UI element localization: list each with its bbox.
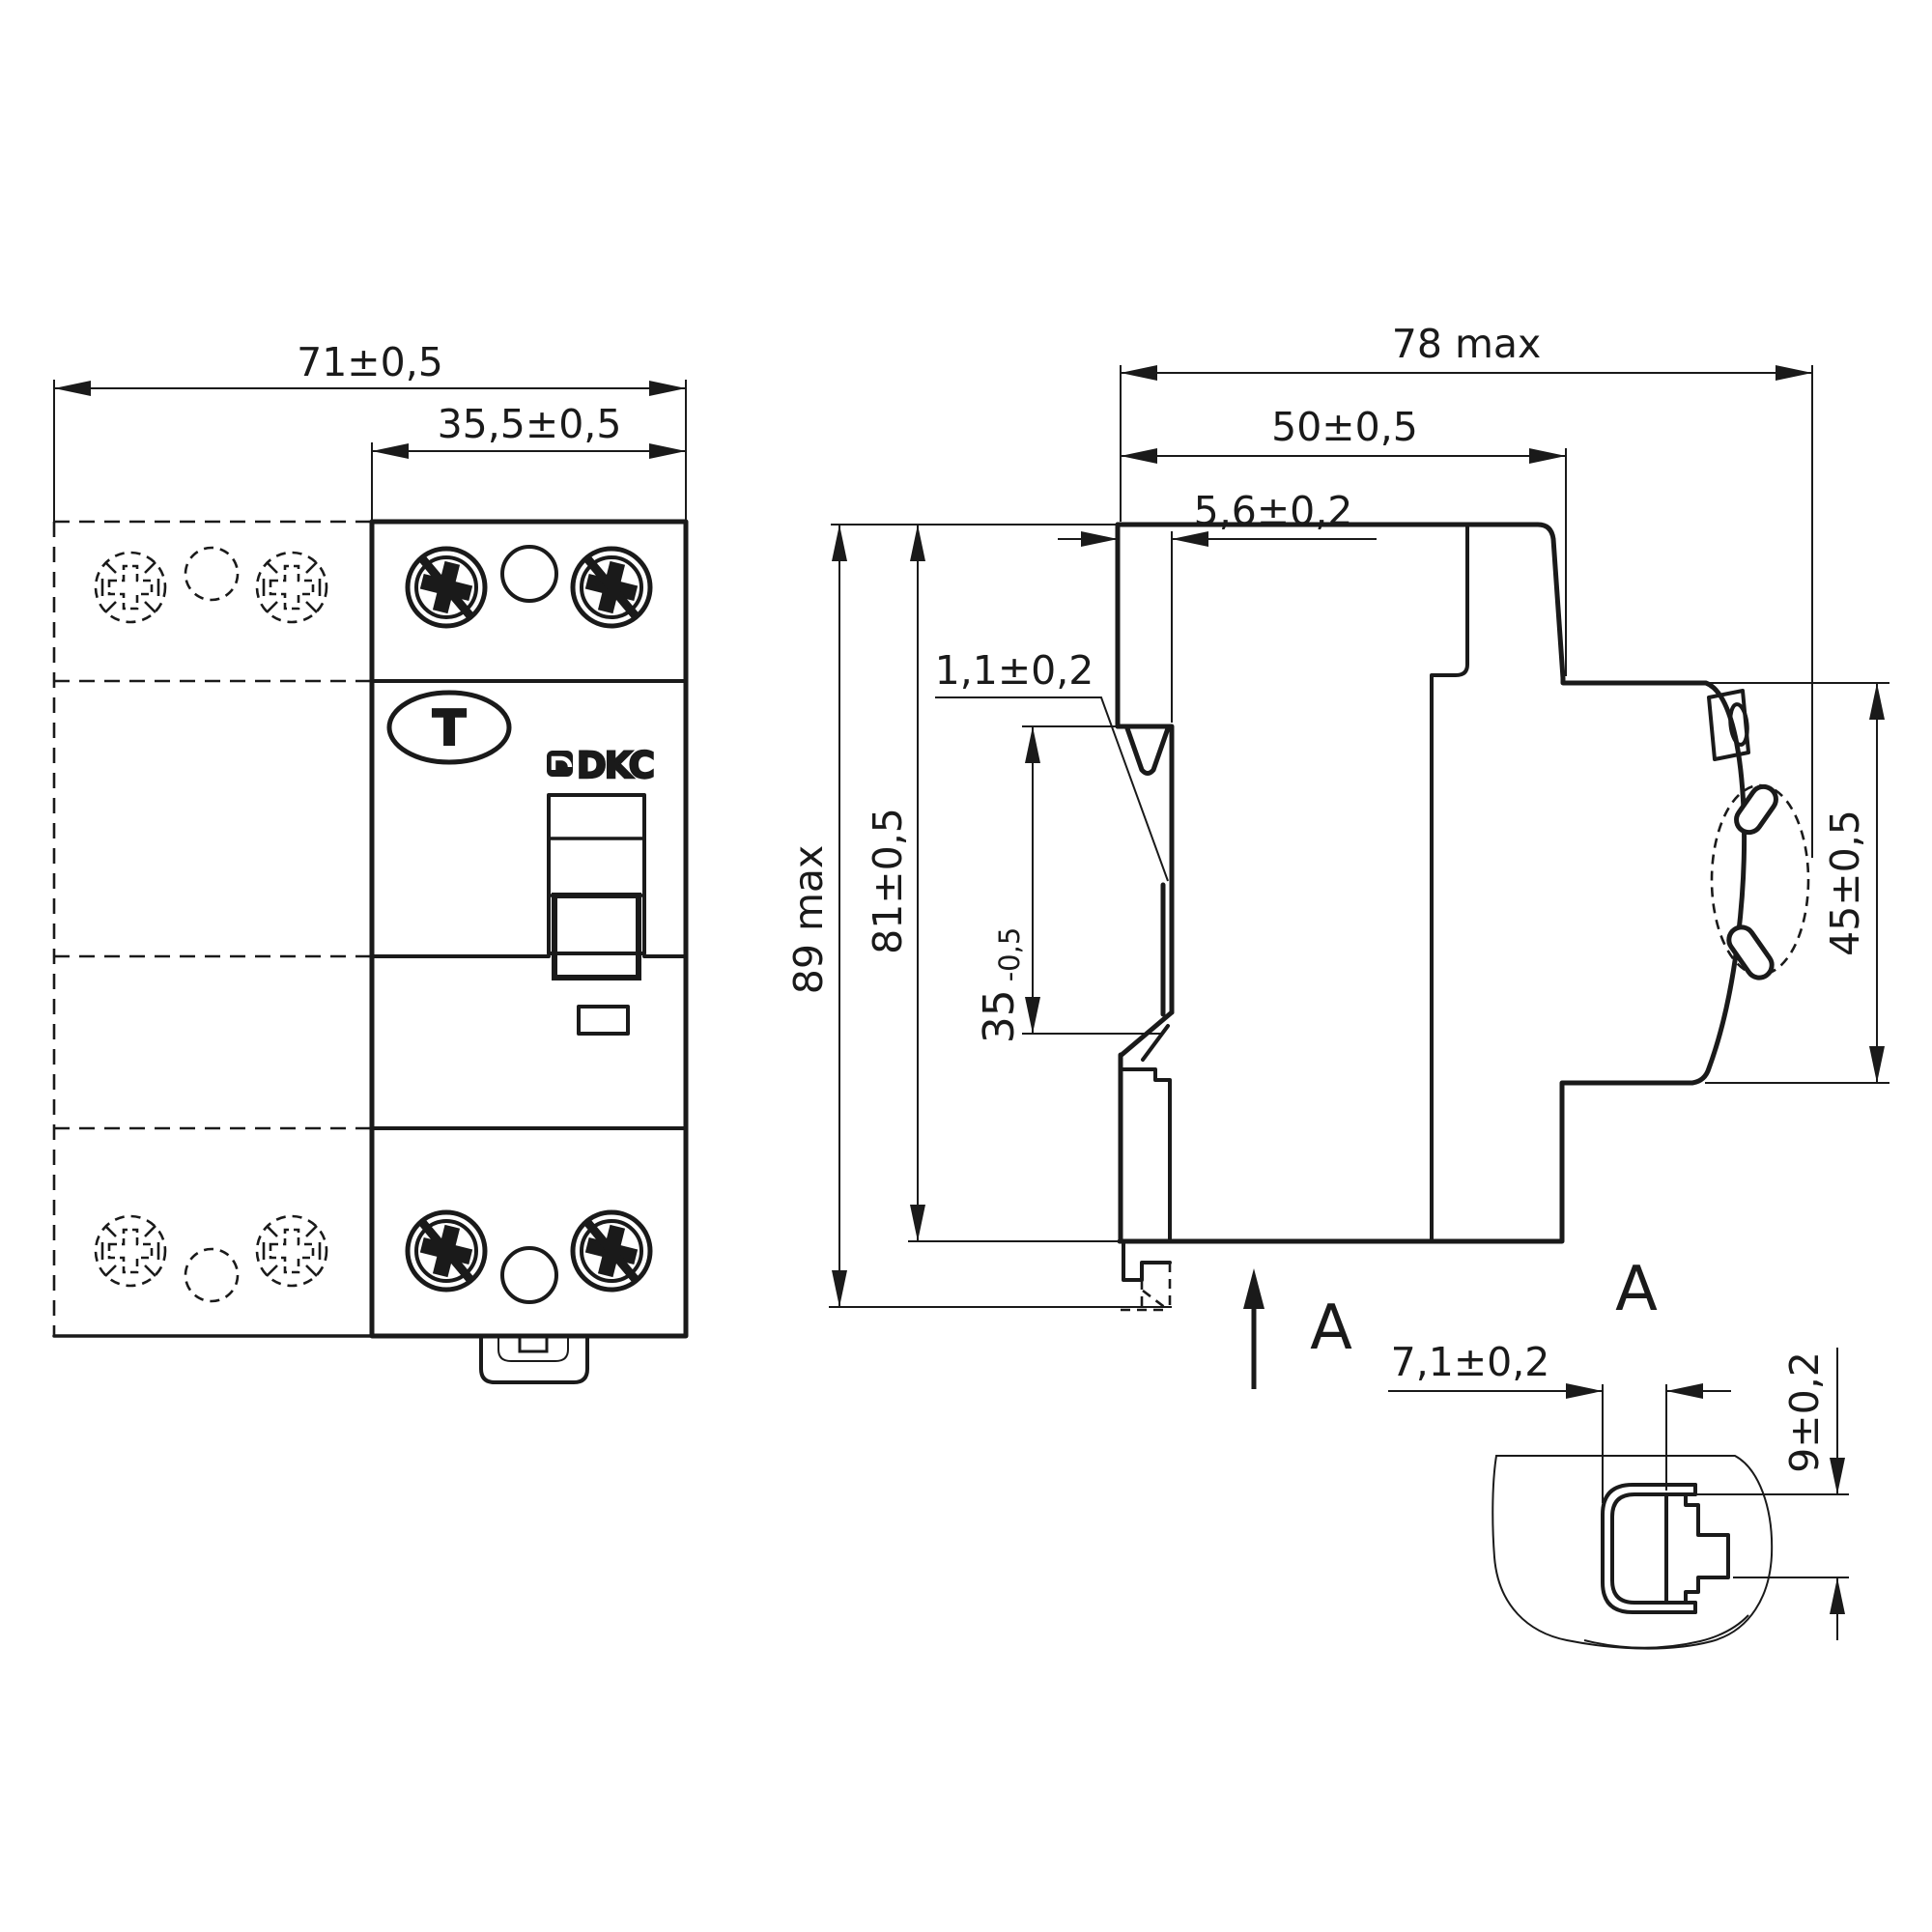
technical-drawing: T DKC [0, 0, 1932, 1932]
dim-din-step: 1,1±0,2 [935, 647, 1094, 694]
dim-din-offset: 5,6±0,2 [1194, 488, 1353, 534]
dim-total-width: 71±0,5 [297, 339, 443, 385]
dim-din-rail-value: 35 [975, 989, 1024, 1043]
background [0, 0, 1932, 1932]
brand-logo-text: DKC [577, 745, 653, 786]
dim-clip-height: 9±0,2 [1781, 1351, 1828, 1473]
detail-view-label: A [1615, 1254, 1658, 1325]
test-button-label: T [433, 700, 466, 756]
dim-depth-max: 78 max [1392, 321, 1542, 367]
dim-front-height: 45±0,5 [1822, 810, 1868, 956]
drawing-page: T DKC [0, 0, 1932, 1932]
dim-clip-width: 7,1±0,2 [1391, 1339, 1550, 1385]
dim-din-rail-tolerance: -0,5 [993, 927, 1026, 982]
dim-height-body: 81±0,5 [865, 808, 911, 954]
dim-depth-body: 50±0,5 [1271, 404, 1418, 450]
dim-height-max: 89 max [785, 845, 832, 995]
dim-module-width: 35,5±0,5 [438, 401, 622, 447]
section-arrow-label: A [1310, 1293, 1352, 1364]
